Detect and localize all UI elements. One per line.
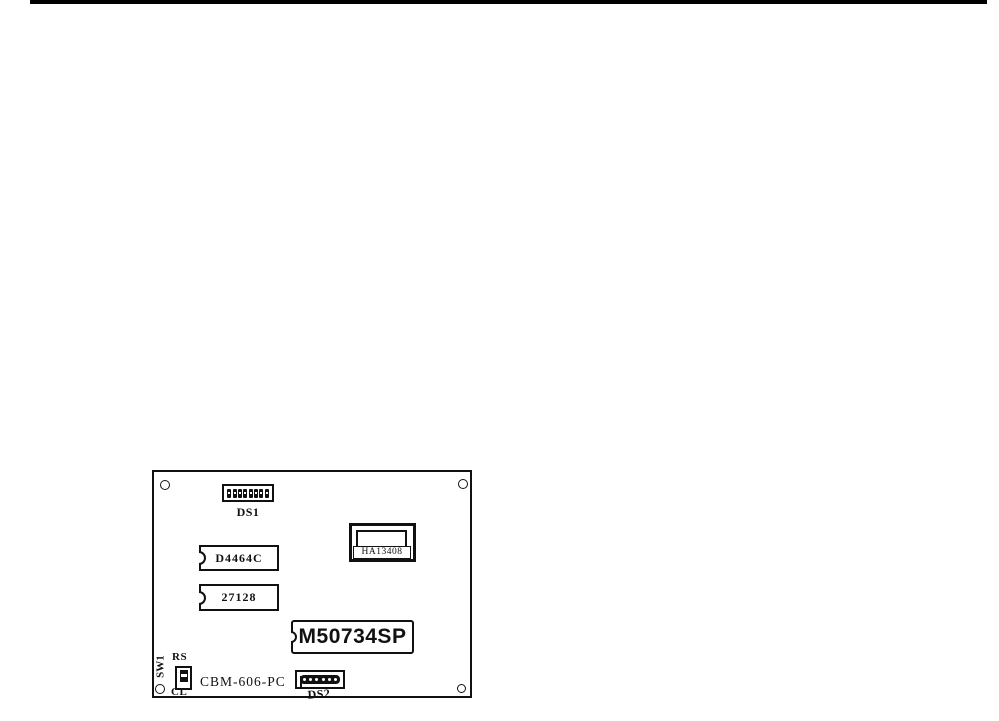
mounting-hole-top-left	[160, 480, 170, 490]
ha13408-label: HA13408	[353, 546, 411, 559]
sw1-rs-label: RS	[172, 651, 187, 663]
sw1-knob	[180, 670, 188, 682]
chip-notch	[199, 551, 206, 565]
dip-position-dot	[322, 678, 325, 681]
dip-position-dot	[334, 678, 337, 681]
dip-position	[249, 489, 253, 498]
dip-position	[227, 489, 231, 498]
ic-27128: 27128	[199, 584, 279, 611]
27128-label: 27128	[222, 590, 257, 605]
dip-position	[259, 489, 263, 498]
ds1-label: DS1	[222, 505, 274, 520]
sw1-label: SW1	[155, 654, 168, 680]
scanned-manual-page: DS1 HA13408 D4464C 27128 M50734SP SW1 RS…	[0, 0, 999, 721]
mounting-hole-bottom-left	[155, 684, 165, 694]
chip-notch	[291, 631, 297, 643]
board-name-label: CBM-606-PC	[200, 674, 286, 690]
dip-position-dot	[309, 678, 312, 681]
mounting-hole-top-right	[458, 479, 468, 489]
ic-m50734sp: M50734SP	[291, 620, 414, 654]
page-top-rule	[30, 0, 987, 4]
m50734sp-label: M50734SP	[299, 625, 407, 649]
ic-d4464c: D4464C	[199, 545, 279, 571]
ic-ha13408: HA13408	[349, 523, 416, 562]
d4464c-label: D4464C	[215, 551, 262, 566]
dip-position	[265, 489, 269, 498]
dip-position	[238, 489, 242, 498]
dip-position-dot	[303, 678, 306, 681]
dip-position	[233, 489, 237, 498]
dip-position-dot	[328, 678, 331, 681]
dip-switch-ds1	[222, 484, 274, 502]
dip-position	[243, 489, 247, 498]
ds2-label: DS2	[302, 686, 337, 703]
pcb-board-outline: DS1 HA13408 D4464C 27128 M50734SP SW1 RS…	[152, 470, 472, 698]
chip-notch	[199, 591, 206, 605]
sw1-cl-label: CL	[171, 686, 187, 698]
dip-position-dot	[315, 678, 318, 681]
mounting-hole-bottom-right	[457, 684, 466, 693]
ds2-switch-band	[300, 675, 340, 684]
dip-position	[254, 489, 258, 498]
